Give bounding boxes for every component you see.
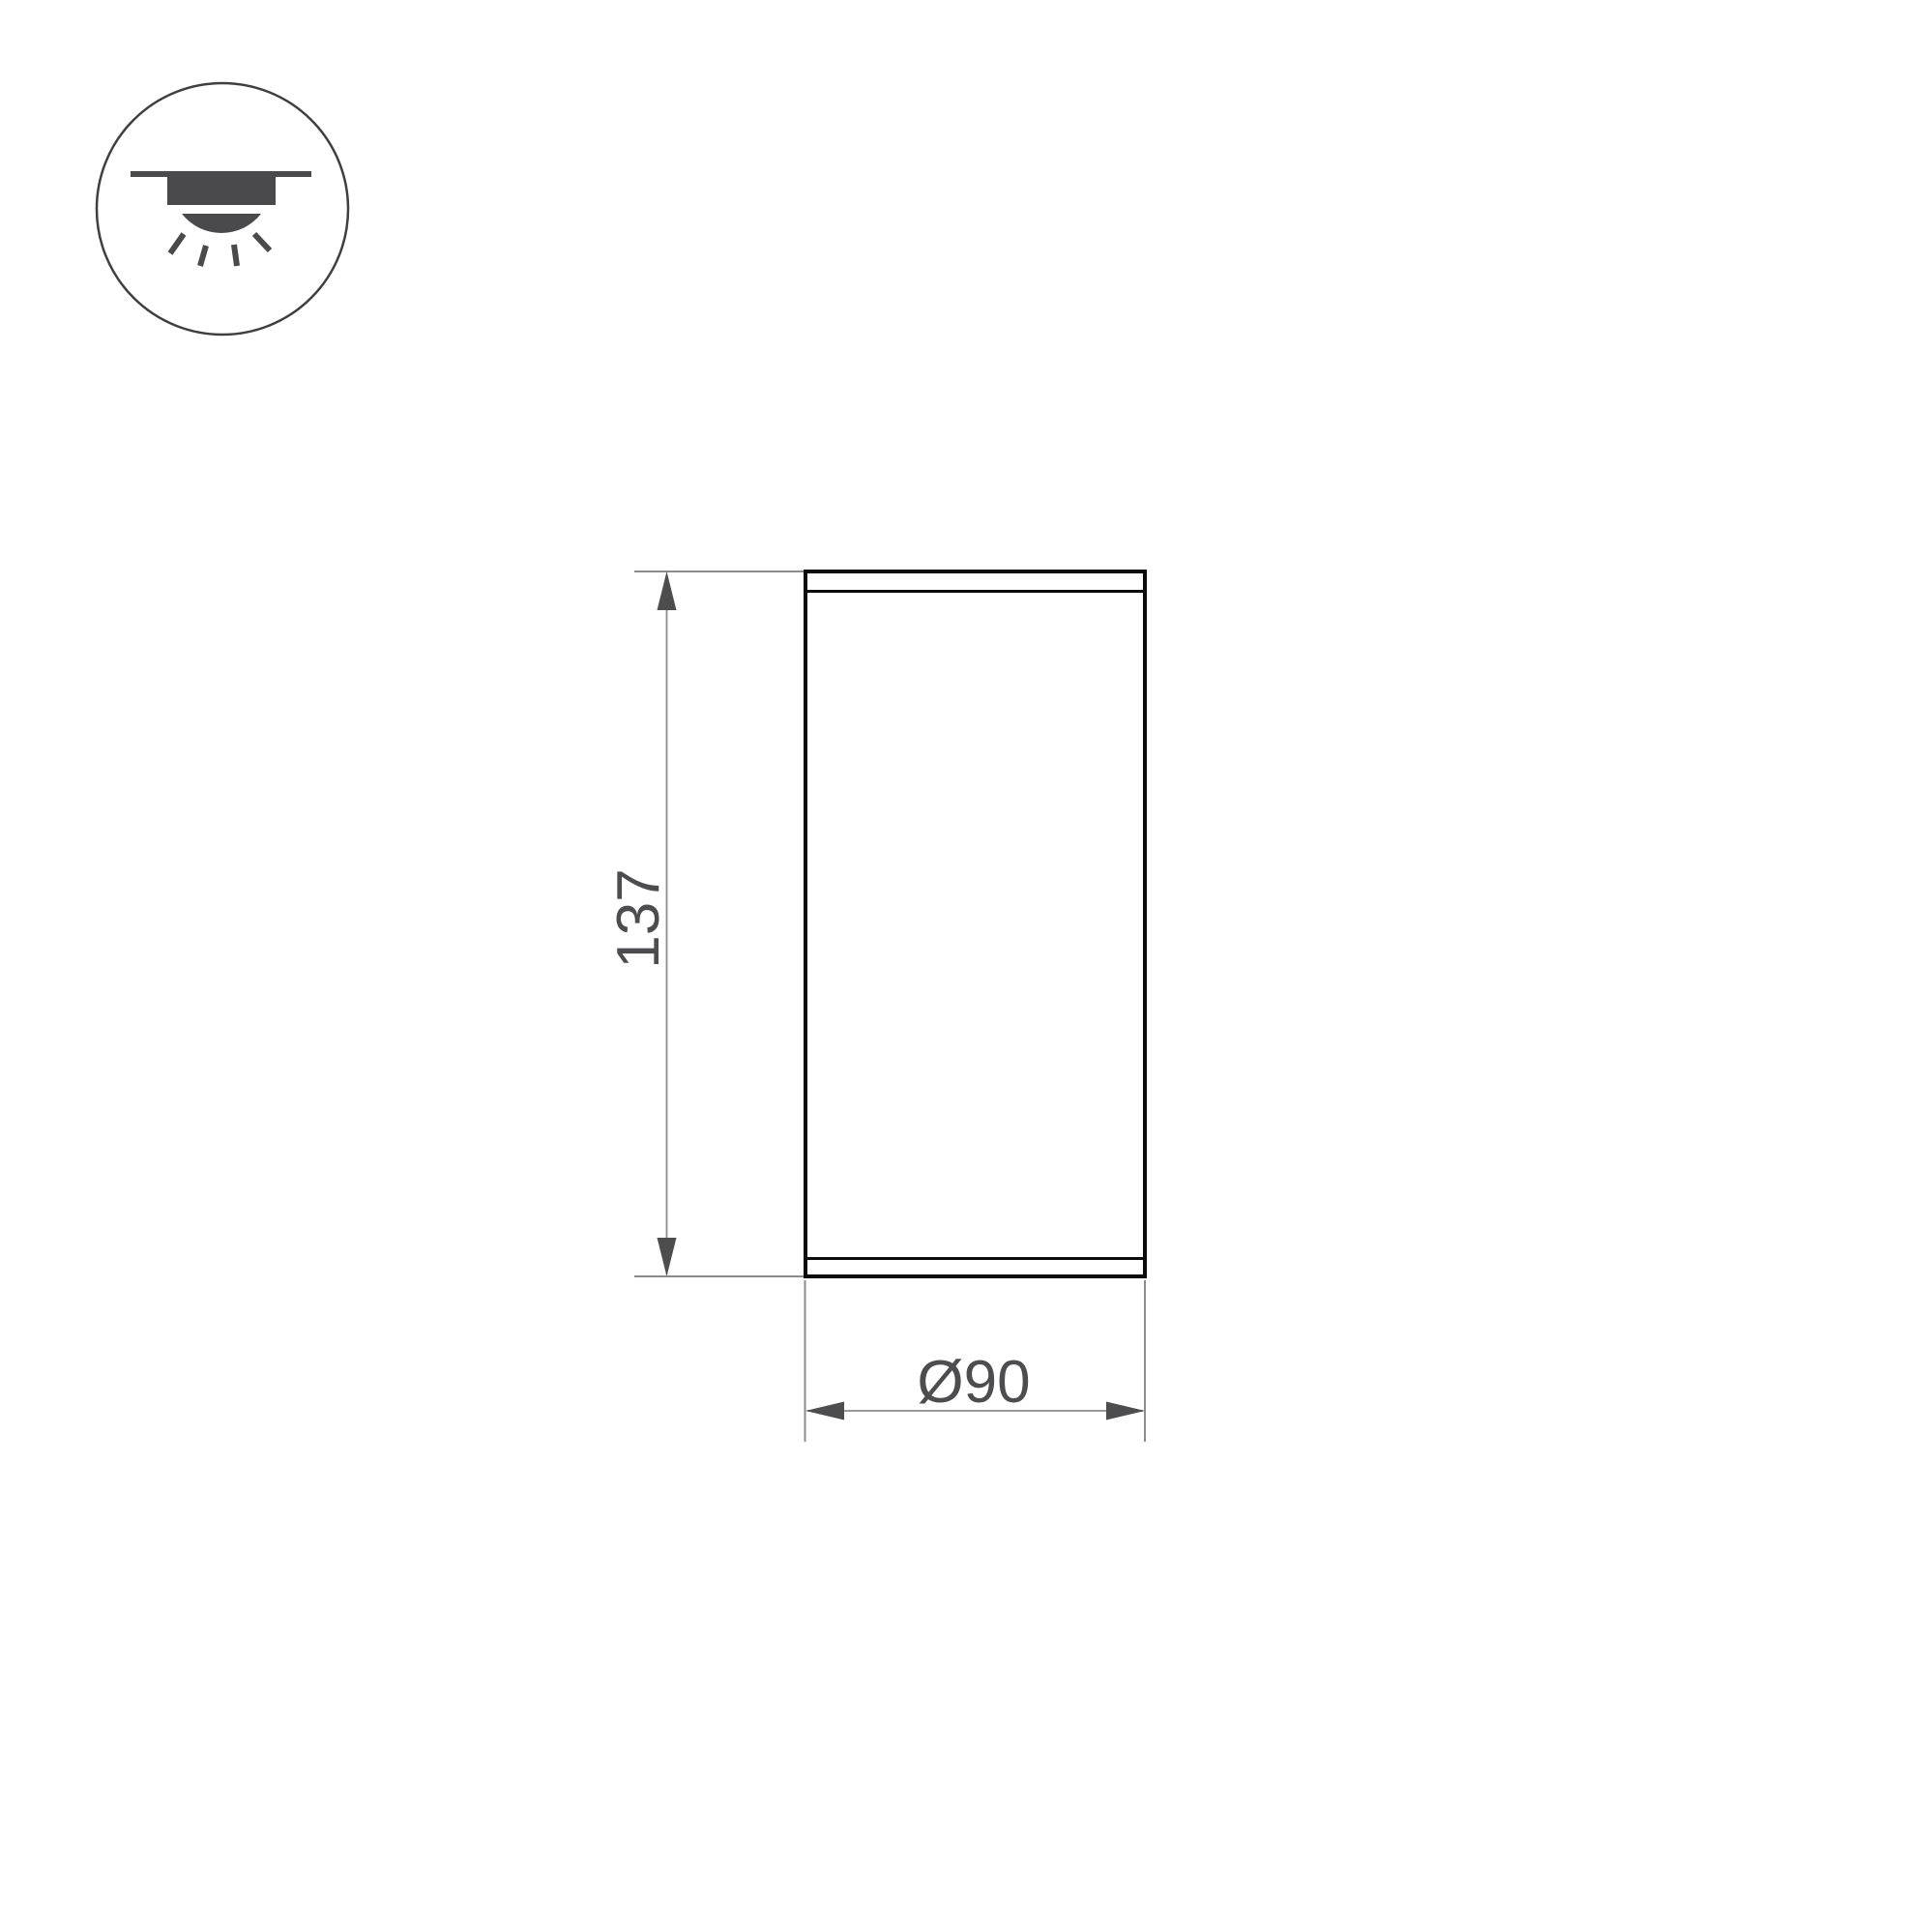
height-dimension-label: 137 — [605, 868, 672, 968]
height-dimension: 137 — [605, 571, 804, 1276]
light-ray-icon — [254, 234, 270, 250]
arrow-down-icon — [658, 1238, 677, 1276]
icon-circle-border — [97, 83, 348, 335]
fixture-side-view — [805, 571, 1145, 1276]
diameter-dimension-label: Ø90 — [917, 1349, 1030, 1416]
light-ray-icon — [200, 246, 206, 266]
light-ray-icon — [234, 245, 237, 266]
light-ray-icon — [170, 234, 184, 253]
arrow-left-icon — [805, 1402, 844, 1420]
surface-mounted-downlight-icon — [97, 83, 348, 335]
fixture-housing — [167, 176, 276, 205]
drawing-sheet: 137 Ø90 — [0, 0, 1932, 1932]
technical-drawing-canvas: 137 Ø90 — [0, 0, 1932, 1932]
light-dome — [182, 214, 261, 233]
fixture-outline — [805, 571, 1145, 1276]
diameter-dimension: Ø90 — [805, 1280, 1146, 1442]
arrow-up-icon — [658, 571, 677, 610]
arrow-right-icon — [1106, 1402, 1145, 1420]
